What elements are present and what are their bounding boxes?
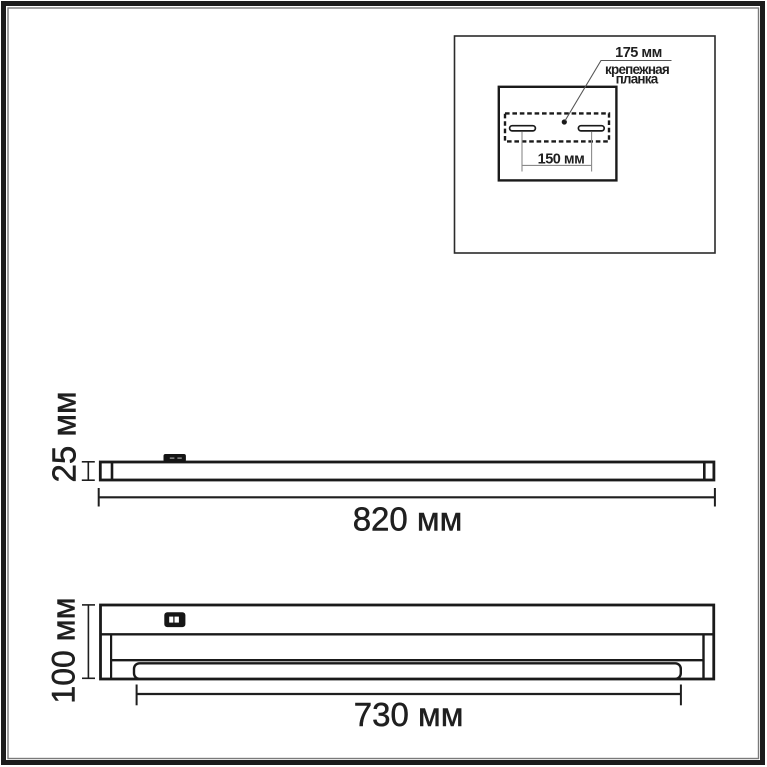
svg-text:730 мм: 730 мм [354, 696, 464, 733]
svg-text:25 мм: 25 мм [46, 391, 83, 482]
svg-text:100 мм: 100 мм [46, 597, 82, 703]
svg-text:150 мм: 150 мм [538, 152, 585, 168]
svg-text:175 мм: 175 мм [615, 45, 662, 61]
svg-text:планка: планка [616, 71, 659, 86]
svg-text:820 мм: 820 мм [353, 501, 463, 538]
